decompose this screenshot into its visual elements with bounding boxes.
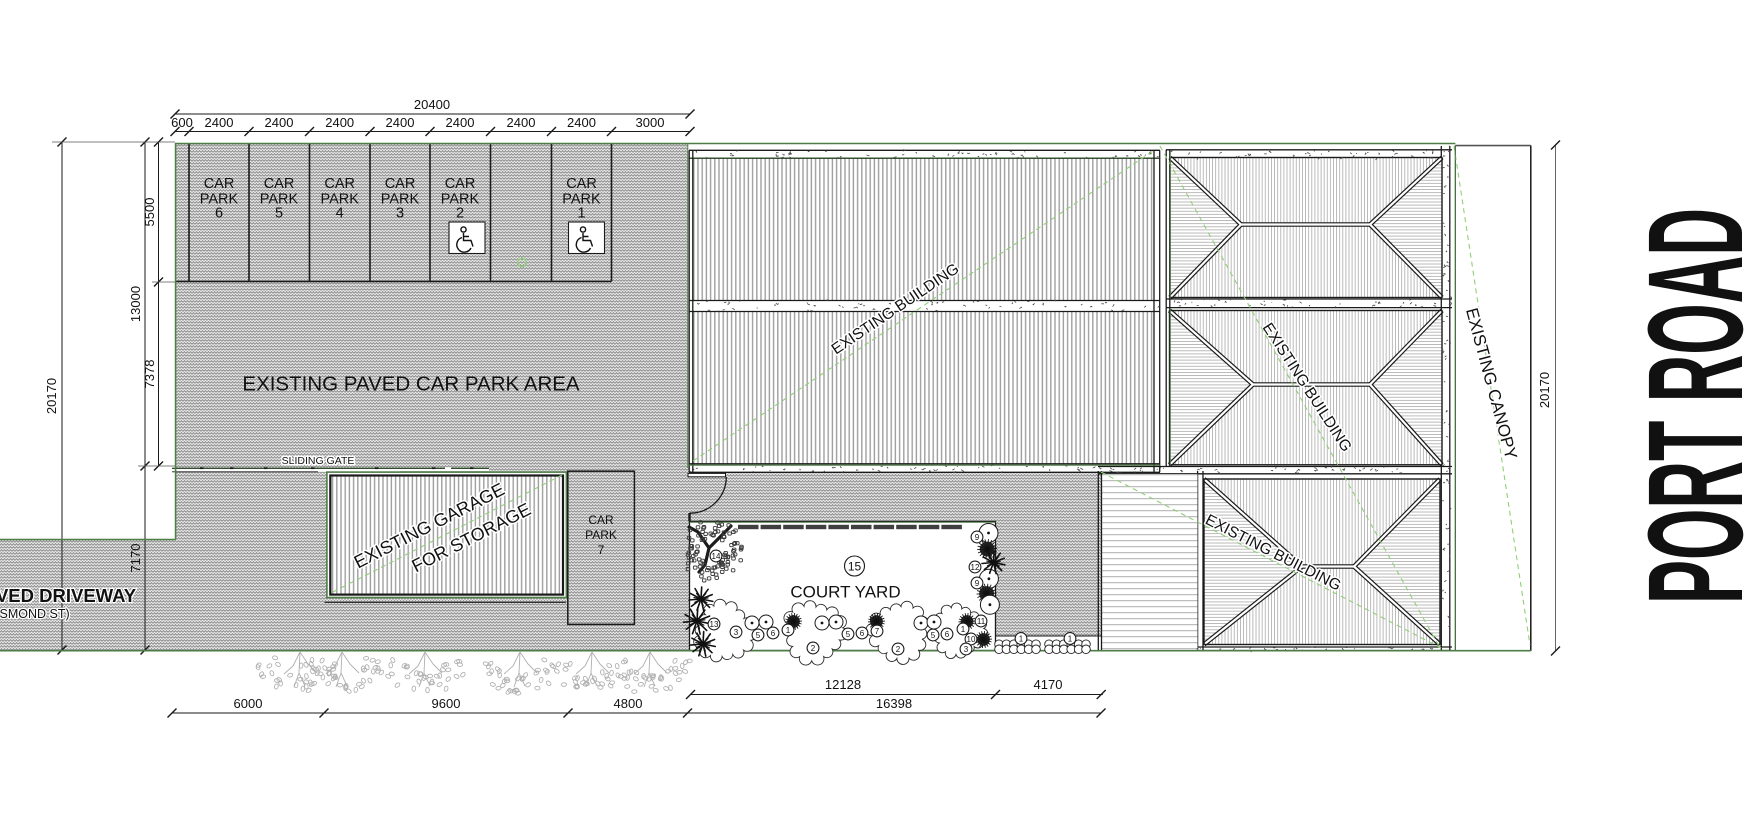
svg-text:PARK: PARK [585,528,617,542]
svg-text:6: 6 [860,629,865,638]
svg-text:6: 6 [945,630,950,639]
svg-text:4170: 4170 [1034,677,1063,692]
svg-text:2400: 2400 [325,115,354,130]
svg-text:6: 6 [771,629,776,638]
svg-text:5: 5 [275,206,283,222]
svg-text:EXISTING PAVED CAR PARK AREA: EXISTING PAVED CAR PARK AREA [242,373,580,396]
svg-text:600: 600 [171,115,193,130]
svg-text:20170: 20170 [1537,372,1552,408]
svg-text:13000: 13000 [128,286,143,322]
svg-text:4800: 4800 [614,696,643,711]
svg-text:CAR: CAR [445,176,476,192]
svg-text:9600: 9600 [432,696,461,711]
svg-text:4: 4 [336,206,344,222]
svg-text:2400: 2400 [507,115,536,130]
svg-text:2400: 2400 [386,115,415,130]
svg-text:1: 1 [961,625,966,634]
svg-text:16398: 16398 [876,696,912,711]
svg-text:9: 9 [975,533,980,542]
svg-text:11: 11 [977,617,986,626]
svg-text:7: 7 [598,543,605,557]
svg-text:13: 13 [710,620,719,629]
svg-text:CAR: CAR [264,176,295,192]
svg-text:1: 1 [1019,634,1024,643]
svg-text:1: 1 [577,206,585,222]
svg-text:2400: 2400 [446,115,475,130]
svg-text:3000: 3000 [636,115,665,130]
svg-text:CAR: CAR [566,176,597,192]
svg-text:CAR: CAR [588,513,614,527]
svg-text:2: 2 [811,644,816,653]
svg-text:CAR: CAR [324,176,355,192]
svg-text:PORT ROAD: PORT ROAD [1620,208,1762,604]
svg-text:1: 1 [786,626,791,635]
svg-text:20400: 20400 [414,97,450,112]
svg-text:7170: 7170 [128,544,143,573]
svg-text:2: 2 [896,645,901,654]
svg-text:20170: 20170 [44,378,59,414]
svg-text:CAR: CAR [204,176,235,192]
svg-text:5: 5 [846,630,851,639]
svg-text:7: 7 [875,627,880,636]
svg-text:6000: 6000 [234,696,263,711]
svg-text:12128: 12128 [825,677,861,692]
svg-text:CAR: CAR [385,176,416,192]
svg-text:12: 12 [971,563,980,572]
svg-text:2400: 2400 [567,115,596,130]
svg-text:3: 3 [396,206,404,222]
svg-text:6: 6 [215,206,223,222]
svg-text:SLIDING GATE: SLIDING GATE [282,455,355,467]
svg-text:(DESMOND ST): (DESMOND ST) [0,607,70,621]
svg-text:5500: 5500 [142,198,157,227]
svg-text:PAVED DRIVEWAY: PAVED DRIVEWAY [0,585,137,606]
svg-text:14: 14 [712,552,721,561]
svg-text:1: 1 [1068,634,1073,643]
svg-text:5: 5 [756,631,761,640]
svg-text:9: 9 [975,579,980,588]
svg-text:COURT YARD: COURT YARD [790,583,900,602]
svg-text:10: 10 [967,635,976,644]
svg-text:7378: 7378 [142,360,157,389]
svg-text:2400: 2400 [265,115,294,130]
svg-text:2400: 2400 [205,115,234,130]
svg-text:2: 2 [456,206,464,222]
svg-text:15: 15 [848,560,862,574]
svg-text:3: 3 [964,645,969,654]
svg-text:5: 5 [931,631,936,640]
svg-text:3: 3 [734,628,739,637]
